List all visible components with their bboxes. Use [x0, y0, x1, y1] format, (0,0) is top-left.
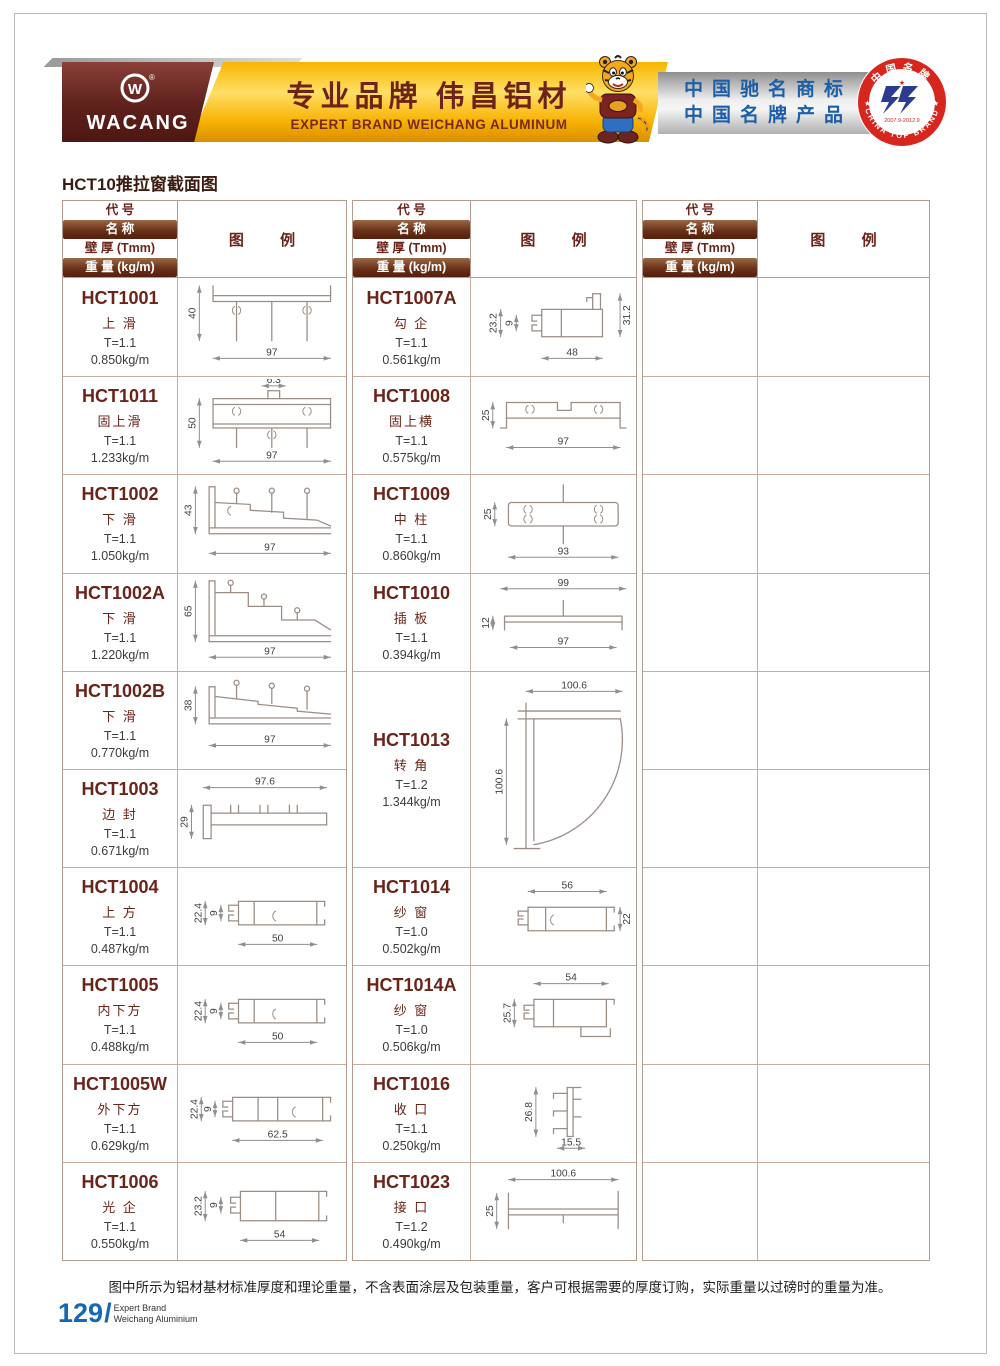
product-info-cell: HCT1005W外下方T=1.10.629kg/m [63, 1065, 178, 1162]
empty-row [643, 769, 929, 867]
product-row: HCT1010插 板T=1.10.394kg/m991297 [353, 573, 636, 671]
product-code: HCT1002B [75, 681, 165, 702]
product-thickness: T=1.1 [104, 631, 136, 645]
dimension-label: 6.3 [267, 379, 282, 386]
product-weight: 0.770kg/m [91, 746, 149, 760]
dimension-label: 50 [272, 933, 284, 944]
product-code: HCT1014 [373, 877, 450, 898]
product-code: HCT1002A [75, 583, 165, 604]
dimension-label: 62.5 [268, 1130, 288, 1141]
product-info-cell: HCT1005内下方T=1.10.488kg/m [63, 966, 178, 1063]
header-banner: 专业品牌 伟昌铝材 EXPERT BRAND WEICHANG ALUMINUM… [62, 56, 948, 148]
product-row: HCT1003边 封T=1.10.671kg/m97.629 [63, 769, 346, 867]
product-name: 固上滑 [97, 411, 142, 430]
svg-text:★: ★ [932, 99, 939, 108]
product-thickness: T=1.0 [395, 925, 427, 939]
product-code: HCT1005W [73, 1074, 167, 1095]
product-info-cell: HCT1006光 企T=1.10.550kg/m [63, 1163, 178, 1260]
product-name: 勾 企 [394, 313, 430, 332]
product-thickness: T=1.1 [395, 631, 427, 645]
product-figure-cell: 6597 [178, 574, 346, 671]
product-info-cell: HCT1009中 柱T=1.10.860kg/m [353, 475, 471, 572]
product-code: HCT1011 [82, 386, 158, 407]
product-thickness: T=1.1 [395, 336, 427, 350]
product-figure-cell [758, 868, 929, 965]
product-name: 光 企 [102, 1197, 138, 1216]
empty-row [643, 474, 929, 572]
product-info-cell: HCT1011固上滑T=1.11.233kg/m [63, 377, 178, 474]
product-name: 纱 窗 [394, 902, 430, 921]
product-info-cell [643, 966, 758, 1063]
product-name: 纱 窗 [394, 1000, 430, 1019]
tiger-mascot-icon [586, 54, 652, 146]
product-thickness: T=1.1 [104, 1122, 136, 1136]
header-code-label: 代 号 [643, 201, 757, 220]
dimension-label: 9 [209, 1202, 220, 1208]
profile-drawing: 991297 [471, 575, 636, 669]
product-figure-cell: 22.4950 [178, 868, 346, 965]
header-weight-label: 重 量 (kg/m) [63, 258, 177, 277]
product-figure-cell: 23.2931.248 [471, 278, 636, 376]
dimension-label: 43 [184, 504, 195, 516]
product-thickness: T=1.1 [104, 434, 136, 448]
dimension-label: 9 [504, 320, 515, 326]
empty-row [643, 573, 929, 671]
profile-drawing: 4097 [179, 280, 345, 374]
dimension-label: 50 [187, 417, 198, 429]
dimension-label: 100.6 [494, 769, 505, 795]
product-weight: 0.850kg/m [91, 353, 149, 367]
product-code: HCT1014A [366, 975, 456, 996]
product-weight: 0.506kg/m [382, 1040, 440, 1054]
product-info-cell: HCT1003边 封T=1.10.671kg/m [63, 770, 178, 867]
product-code: HCT1016 [373, 1074, 450, 1095]
product-code: HCT1001 [81, 288, 158, 309]
product-thickness: T=1.1 [395, 1122, 427, 1136]
header-code-label: 代 号 [63, 201, 177, 220]
product-weight: 0.561kg/m [382, 353, 440, 367]
profile-drawing: 97.629 [179, 772, 345, 866]
header-code-label: 代 号 [353, 201, 470, 220]
product-weight: 1.344kg/m [382, 795, 440, 809]
product-code: HCT1009 [373, 484, 450, 505]
product-name: 外下方 [97, 1099, 142, 1118]
profile-drawing: 2597 [471, 379, 636, 473]
product-name: 下 滑 [102, 608, 138, 627]
dimension-label: 9 [209, 910, 220, 916]
page-title: HCT10推拉窗截面图 [62, 170, 218, 195]
dimension-label: 9 [209, 1008, 220, 1014]
profile-drawing: 23.2931.248 [471, 280, 636, 374]
product-thickness: T=1.1 [395, 532, 427, 546]
product-figure-cell: 100.6100.6 [471, 672, 636, 867]
product-info-cell [643, 475, 758, 572]
product-figure-cell: 26.815.5 [471, 1065, 636, 1162]
product-name: 中 柱 [394, 509, 430, 528]
product-name: 固上横 [389, 411, 434, 430]
profile-drawing: 6.35097 [179, 379, 345, 473]
dimension-label: 40 [187, 307, 198, 319]
product-weight: 0.860kg/m [382, 549, 440, 563]
product-figure-cell: 5622 [471, 868, 636, 965]
dimension-label: 22.4 [193, 903, 204, 923]
product-figure-cell: 4397 [178, 475, 346, 572]
product-row: HCT1014纱 窗T=1.00.502kg/m5622 [353, 867, 636, 965]
header-legend-label: 图 例 [758, 201, 929, 277]
catalog-page: { "header": { "logo_text": "WACANG", "lo… [0, 0, 1000, 1366]
dimension-label: 99 [558, 578, 570, 589]
profile-drawing: 25100.6 [471, 1164, 636, 1258]
dimension-label: 29 [180, 815, 191, 827]
product-figure-cell: 6.35097 [178, 377, 346, 474]
product-name: 上 滑 [102, 313, 138, 332]
dimension-label: 100.6 [561, 681, 587, 692]
dimension-label: 97.6 [255, 776, 275, 787]
product-figure-cell: 2593 [471, 475, 636, 572]
dimension-label: 23.2 [193, 1196, 204, 1216]
product-thickness: T=1.1 [104, 827, 136, 841]
dimension-label: 25.7 [502, 1003, 513, 1023]
product-code: HCT1013 [373, 730, 450, 751]
product-info-cell: HCT1007A勾 企T=1.10.561kg/m [353, 278, 471, 376]
product-figure-cell [758, 475, 929, 572]
product-weight: 1.220kg/m [91, 648, 149, 662]
dimension-label: 23.2 [489, 313, 500, 333]
product-figure-cell: 5425.7 [471, 966, 636, 1063]
dimension-label: 38 [184, 700, 195, 712]
product-code: HCT1023 [373, 1172, 450, 1193]
product-figure-cell: 2597 [471, 377, 636, 474]
product-name: 内下方 [97, 1000, 142, 1019]
profile-drawing: 22.4962.5 [179, 1066, 345, 1160]
dimension-label: 54 [565, 973, 577, 984]
product-figure-cell [758, 1065, 929, 1162]
dimension-label: 22 [622, 913, 633, 925]
product-code: HCT1006 [81, 1172, 158, 1193]
product-weight: 1.233kg/m [91, 451, 149, 465]
dimension-label: 9 [203, 1106, 214, 1112]
product-code: HCT1010 [373, 583, 450, 604]
product-thickness: T=1.1 [104, 532, 136, 546]
product-thickness: T=1.0 [395, 1023, 427, 1037]
product-thickness: T=1.1 [104, 925, 136, 939]
header-legend-label: 图 例 [471, 201, 636, 277]
banner-slogan-cn: 专业品牌 伟昌铝材 [286, 73, 571, 115]
product-name: 边 封 [102, 804, 138, 823]
product-row: HCT1001上 滑T=1.10.850kg/m4097 [63, 278, 346, 376]
dimension-label: 97 [264, 646, 276, 657]
badge-date: 2007.9-2012.9 [884, 118, 919, 124]
table-body-3 [643, 278, 929, 1260]
profile-drawing: 100.6100.6 [471, 674, 636, 864]
product-row: HCT1023接 口T=1.20.490kg/m25100.6 [353, 1162, 636, 1260]
product-info-cell: HCT1002B下 滑T=1.10.770kg/m [63, 672, 178, 769]
product-info-cell: HCT1002下 滑T=1.11.050kg/m [63, 475, 178, 572]
product-info-cell: HCT1013转 角T=1.21.344kg/m [353, 672, 471, 867]
product-name: 收 口 [394, 1099, 430, 1118]
dimension-label: 97 [558, 436, 570, 447]
page-number-block: 129 / Expert Brand Weichang Aluminium [58, 1300, 197, 1326]
product-weight: 0.575kg/m [382, 451, 440, 465]
product-info-cell: HCT1010插 板T=1.10.394kg/m [353, 574, 471, 671]
footer-brand-line1: Expert Brand [114, 1303, 167, 1313]
dimension-label: 22.4 [193, 1001, 204, 1021]
svg-text:★: ★ [899, 79, 905, 87]
product-figure-cell: 3897 [178, 672, 346, 769]
empty-row [643, 867, 929, 965]
header-thickness-label: 壁 厚 (Tmm) [63, 239, 177, 258]
product-figure-cell: 22.4962.5 [178, 1065, 346, 1162]
product-row: HCT1002A下 滑T=1.11.220kg/m6597 [63, 573, 346, 671]
svg-text:★: ★ [864, 99, 871, 108]
product-row: HCT1006光 企T=1.10.550kg/m23.2954 [63, 1162, 346, 1260]
profile-drawing: 3897 [179, 673, 345, 767]
product-weight: 0.250kg/m [382, 1139, 440, 1153]
profile-drawing: 22.4950 [179, 968, 345, 1062]
footer-brand-line2: Weichang Aluminium [114, 1314, 198, 1324]
product-info-cell: HCT1004上 方T=1.10.487kg/m [63, 868, 178, 965]
product-info-cell [643, 1163, 758, 1260]
product-name: 下 滑 [102, 509, 138, 528]
product-row: HCT1013转 角T=1.21.344kg/m100.6100.6 [353, 671, 636, 867]
product-row: HCT1005内下方T=1.10.488kg/m22.4950 [63, 965, 346, 1063]
product-weight: 0.490kg/m [382, 1237, 440, 1251]
product-row: HCT1011固上滑T=1.11.233kg/m6.35097 [63, 376, 346, 474]
product-row: HCT1005W外下方T=1.10.629kg/m22.4962.5 [63, 1064, 346, 1162]
product-row: HCT1008固上横T=1.10.575kg/m2597 [353, 376, 636, 474]
product-info-cell: HCT1001上 滑T=1.10.850kg/m [63, 278, 178, 376]
product-weight: 0.487kg/m [91, 942, 149, 956]
header-weight-label: 重 量 (kg/m) [353, 258, 470, 277]
product-info-cell: HCT1008固上横T=1.10.575kg/m [353, 377, 471, 474]
table-header: 代 号 名 称 壁 厚 (Tmm) 重 量 (kg/m) 图 例 [63, 201, 346, 278]
product-figure-cell [758, 377, 929, 474]
profile-drawing: 4397 [179, 477, 345, 571]
empty-row [643, 1064, 929, 1162]
empty-row [643, 278, 929, 376]
product-info-cell [643, 1065, 758, 1162]
empty-row [643, 671, 929, 769]
product-figure-cell: 22.4950 [178, 966, 346, 1063]
svg-text:W: W [128, 81, 143, 98]
product-figure-cell [758, 770, 929, 867]
product-info-cell [643, 770, 758, 867]
dimension-label: 25 [481, 409, 492, 421]
product-table-3: 代 号 名 称 壁 厚 (Tmm) 重 量 (kg/m) 图 例 [642, 200, 930, 1261]
header-name-label: 名 称 [643, 220, 757, 239]
wacang-logo: W ® WACANG [62, 62, 214, 142]
dimension-label: 22.4 [189, 1099, 200, 1119]
page-number-slash: / [104, 1300, 112, 1326]
wacang-wordmark: WACANG [86, 112, 189, 135]
empty-row [643, 376, 929, 474]
profile-drawing: 5425.7 [471, 968, 636, 1062]
product-thickness: T=1.1 [104, 1023, 136, 1037]
product-figure-cell [758, 278, 929, 376]
product-name: 下 滑 [102, 706, 138, 725]
table-header: 代 号 名 称 壁 厚 (Tmm) 重 量 (kg/m) 图 例 [643, 201, 929, 278]
header-name-label: 名 称 [63, 220, 177, 239]
dimension-label: 15.5 [561, 1137, 581, 1148]
empty-row [643, 965, 929, 1063]
china-top-brand-badge: 中国名牌 CHINA TOP BRAND ★ ★ ★ 2007.9-2012.9 [856, 56, 948, 148]
product-thickness: T=1.1 [104, 1220, 136, 1234]
product-row: HCT1002B下 滑T=1.10.770kg/m3897 [63, 671, 346, 769]
product-weight: 0.488kg/m [91, 1040, 149, 1054]
header-legend-label: 图 例 [178, 201, 346, 277]
product-figure-cell [758, 672, 929, 769]
product-table-2: 代 号 名 称 壁 厚 (Tmm) 重 量 (kg/m) 图 例 HCT1007… [352, 200, 637, 1261]
product-info-cell: HCT1002A下 滑T=1.11.220kg/m [63, 574, 178, 671]
footer-note: 图中所示为铝材基材标准厚度和理论重量，不含表面涂层及包装重量，客户可根据需要的厚… [0, 1276, 1000, 1296]
product-code: HCT1005 [81, 975, 158, 996]
dimension-label: 97 [266, 450, 278, 461]
table-body-1: HCT1001上 滑T=1.10.850kg/m4097HCT1011固上滑T=… [63, 278, 346, 1260]
product-name: 上 方 [102, 902, 138, 921]
dimension-label: 97 [266, 347, 278, 358]
product-info-cell [643, 868, 758, 965]
product-row: HCT1016收 口T=1.10.250kg/m26.815.5 [353, 1064, 636, 1162]
dimension-label: 48 [566, 347, 578, 358]
dimension-label: 26.8 [524, 1102, 535, 1122]
product-info-cell [643, 377, 758, 474]
product-table-1: 代 号 名 称 壁 厚 (Tmm) 重 量 (kg/m) 图 例 HCT1001… [62, 200, 347, 1261]
product-code: HCT1003 [81, 779, 158, 800]
product-figure-cell [758, 966, 929, 1063]
dimension-label: 97 [264, 542, 276, 553]
dimension-label: 31.2 [622, 305, 633, 325]
product-code: HCT1002 [81, 484, 158, 505]
profile-drawing: 5622 [471, 870, 636, 964]
dimension-label: 56 [561, 880, 573, 891]
registered-mark-icon: ® [149, 73, 155, 82]
profile-drawing: 6597 [179, 575, 345, 669]
product-info-cell [643, 278, 758, 376]
dimension-label: 97 [264, 735, 276, 746]
dimension-label: 25 [485, 1205, 496, 1217]
product-thickness: T=1.1 [395, 434, 427, 448]
product-thickness: T=1.2 [395, 778, 427, 792]
dimension-label: 100.6 [550, 1169, 576, 1180]
product-weight: 0.502kg/m [382, 942, 440, 956]
page-number: 129 [58, 1300, 103, 1326]
product-thickness: T=1.2 [395, 1220, 427, 1234]
product-figure-cell: 991297 [471, 574, 636, 671]
profile-drawing: 22.4950 [179, 870, 345, 964]
product-code: HCT1004 [81, 877, 158, 898]
product-thickness: T=1.1 [104, 336, 136, 350]
product-name: 插 板 [394, 608, 430, 627]
profile-drawing: 2593 [471, 477, 636, 571]
profile-drawing: 23.2954 [179, 1164, 345, 1258]
header-name-label: 名 称 [353, 220, 470, 239]
product-figure-cell: 25100.6 [471, 1163, 636, 1260]
product-figure-cell: 4097 [178, 278, 346, 376]
table-header: 代 号 名 称 壁 厚 (Tmm) 重 量 (kg/m) 图 例 [353, 201, 636, 278]
header-weight-label: 重 量 (kg/m) [643, 258, 757, 277]
product-figure-cell [758, 574, 929, 671]
product-code: HCT1007A [366, 288, 456, 309]
dimension-label: 50 [272, 1031, 284, 1042]
table-body-2: HCT1007A勾 企T=1.10.561kg/m23.2931.248HCT1… [353, 278, 636, 1260]
profile-drawing: 26.815.5 [471, 1066, 636, 1160]
product-row: HCT1014A纱 窗T=1.00.506kg/m5425.7 [353, 965, 636, 1063]
product-row: HCT1002下 滑T=1.11.050kg/m4397 [63, 474, 346, 572]
product-figure-cell: 23.2954 [178, 1163, 346, 1260]
product-figure-cell [758, 1163, 929, 1260]
product-info-cell: HCT1023接 口T=1.20.490kg/m [353, 1163, 471, 1260]
header-thickness-label: 壁 厚 (Tmm) [353, 239, 470, 258]
product-info-cell [643, 574, 758, 671]
dimension-label: 12 [481, 617, 492, 629]
empty-row [643, 1162, 929, 1260]
product-weight: 0.671kg/m [91, 844, 149, 858]
header-thickness-label: 壁 厚 (Tmm) [643, 239, 757, 258]
product-info-cell: HCT1014纱 窗T=1.00.502kg/m [353, 868, 471, 965]
product-weight: 0.550kg/m [91, 1237, 149, 1251]
product-info-cell: HCT1016收 口T=1.10.250kg/m [353, 1065, 471, 1162]
dimension-label: 65 [184, 605, 195, 617]
product-weight: 0.394kg/m [382, 648, 440, 662]
product-thickness: T=1.1 [104, 729, 136, 743]
product-info-cell: HCT1014A纱 窗T=1.00.506kg/m [353, 966, 471, 1063]
product-name: 接 口 [394, 1197, 430, 1216]
wacang-w-icon: W ® [118, 71, 158, 110]
product-row: HCT1009中 柱T=1.10.860kg/m2593 [353, 474, 636, 572]
product-code: HCT1008 [373, 386, 450, 407]
banner-slogan-en: EXPERT BRAND WEICHANG ALUMINUM [291, 117, 568, 132]
product-info-cell [643, 672, 758, 769]
product-figure-cell: 97.629 [178, 770, 346, 867]
dimension-label: 25 [483, 508, 494, 520]
product-weight: 1.050kg/m [91, 549, 149, 563]
product-name: 转 角 [394, 755, 430, 774]
dimension-label: 97 [558, 637, 570, 648]
product-row: HCT1007A勾 企T=1.10.561kg/m23.2931.248 [353, 278, 636, 376]
dimension-label: 54 [274, 1230, 286, 1241]
product-weight: 0.629kg/m [91, 1139, 149, 1153]
product-row: HCT1004上 方T=1.10.487kg/m22.4950 [63, 867, 346, 965]
dimension-label: 93 [558, 546, 570, 557]
